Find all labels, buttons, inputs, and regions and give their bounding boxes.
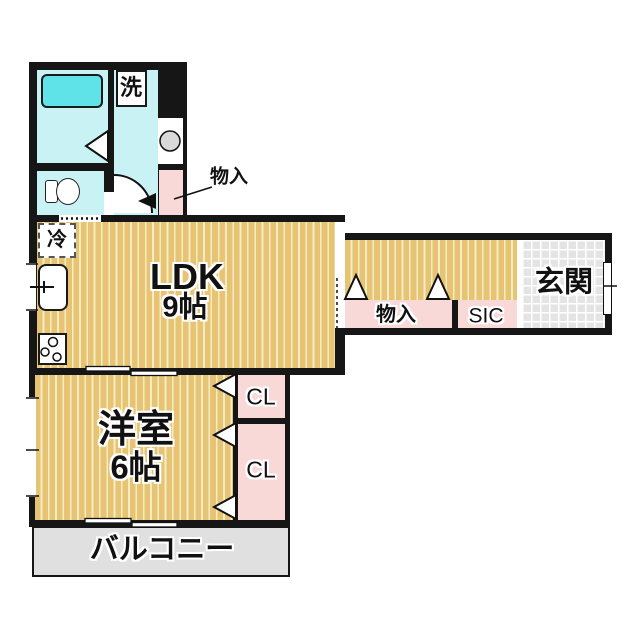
balcony-label: バルコニー [90, 536, 234, 565]
washer-label: 洗 [120, 77, 142, 99]
entrance-label: 玄関 [535, 269, 593, 298]
toilet-doorway [104, 192, 114, 215]
fridge-label: 冷 [47, 230, 67, 250]
bathtub [41, 74, 103, 108]
ldk-size-label: 9帖 [162, 294, 207, 323]
bedroom-size-label: 6帖 [110, 451, 161, 484]
washbasin-counter [158, 118, 183, 164]
stove [38, 333, 67, 365]
kitchen-sink [38, 264, 68, 311]
closet-bottom-label: CL [246, 459, 275, 482]
shoe-closet-label: SIC [468, 306, 503, 327]
entrance-door [603, 262, 612, 315]
toilet-bowl [56, 178, 80, 205]
bedroom-name-label: 洋室 [98, 411, 174, 449]
closet-top-label: CL [246, 386, 275, 409]
ldk-hall-opening [335, 222, 345, 328]
storage-upper-label: 物入 [210, 168, 248, 187]
hallway-floor [345, 240, 517, 300]
storage-upper-area [159, 170, 183, 215]
hall-storage-label: 物入 [376, 305, 416, 325]
floor-plan: 洗 物入 冷 LDK 9帖 物入 SIC 玄関 洋室 6帖 CL CL バルコニ… [0, 0, 640, 640]
ldk-name-label: LDK [150, 259, 224, 295]
